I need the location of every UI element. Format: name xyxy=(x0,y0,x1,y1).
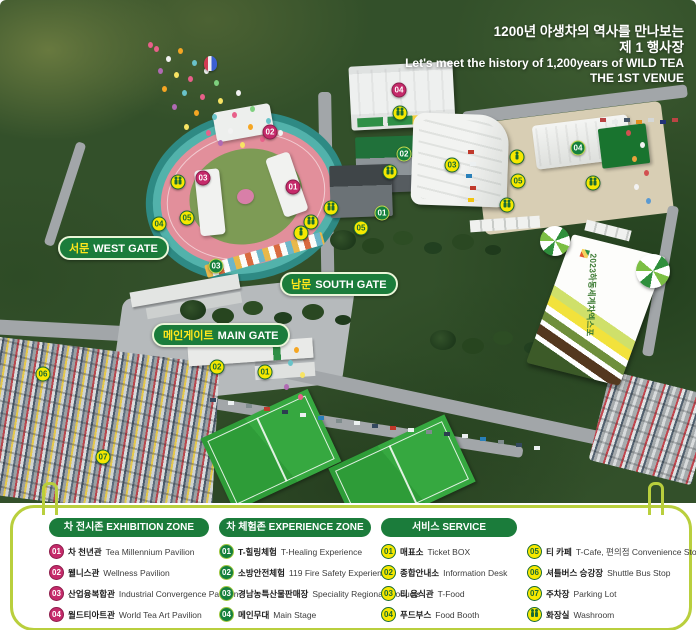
legend-label-english: 119 Fire Safety Experience xyxy=(289,568,391,578)
map-marker-washroom xyxy=(586,176,601,191)
expo-banner-text: 2023하동세계차엑스포 xyxy=(584,253,600,336)
map-marker-figure xyxy=(294,226,309,241)
legend-marker-01: 01 xyxy=(219,544,234,559)
legend-label-english: T-Food xyxy=(438,589,465,599)
map-marker-service-07: 07 xyxy=(96,450,111,465)
washroom-icon xyxy=(387,169,394,175)
legend-label-english: Ticket BOX xyxy=(427,547,470,557)
map-marker-exhibition-04: 04 xyxy=(392,83,407,98)
legend-marker-04: 04 xyxy=(49,607,64,622)
person-icon xyxy=(300,230,303,236)
washroom-icon xyxy=(328,205,335,211)
gate-south-korean: 남문 xyxy=(291,279,311,291)
person-icon xyxy=(516,154,519,160)
legend-section-experience: 차 체험존 EXPERIENCE ZONE01T-힐링체험T-Healing E… xyxy=(219,518,371,628)
large-white-tent xyxy=(410,112,509,207)
legend-item-service-03: 03티 음식관T-Food xyxy=(381,586,517,601)
legend-label-english: Information Desk xyxy=(443,568,507,578)
parked-cars xyxy=(0,0,6,4)
panel-hanger-pin xyxy=(42,482,58,515)
legend-item-service-2-06: 06셔틀버스 승강장Shuttle Bus Stop xyxy=(527,565,685,580)
map-marker-service-02: 02 xyxy=(210,360,225,375)
map-marker-service-01: 01 xyxy=(258,365,273,380)
title-english-line1: Let's meet the history of 1,200years of … xyxy=(405,56,684,71)
page: 2023하동세계차엑스포 1200년 야생차의 역사를 만나보는 제 1 행사장… xyxy=(0,0,696,630)
legend-item-service-04: 04푸드부스Food Booth xyxy=(381,607,517,622)
legend-label-korean: 티 음식관 xyxy=(400,588,434,600)
legend-label-korean: 주차장 xyxy=(546,588,569,600)
legend-item-experience-04: 04메인무대Main Stage xyxy=(219,607,371,622)
legend-label-english: Tea Millennium Pavilion xyxy=(106,547,195,557)
map-marker-service-05: 05 xyxy=(511,174,526,189)
legend-item-exhibition-04: 04월드티아트관World Tea Art Pavilion xyxy=(49,607,209,622)
legend-label-english: Wellness Pavilion xyxy=(103,568,169,578)
washroom-icon xyxy=(527,607,542,622)
map-marker-service-06: 06 xyxy=(36,367,51,382)
legend-section-service: 서비스 SERVICE01매표소Ticket BOX02종합안내소Informa… xyxy=(381,518,517,628)
gate-west-english: WEST GATE xyxy=(93,243,158,255)
striped-balloon xyxy=(540,226,570,256)
legend-label-english: Washroom xyxy=(573,610,614,620)
title-korean-line1: 1200년 야생차의 역사를 만나보는 xyxy=(405,24,684,40)
legend-label-korean: 셔틀버스 승강장 xyxy=(546,567,603,579)
washroom-icon xyxy=(590,180,597,186)
map-marker-washroom xyxy=(500,198,515,213)
legend-item-exhibition-02: 02웰니스관Wellness Pavilion xyxy=(49,565,209,580)
legend-label-korean: 종합안내소 xyxy=(400,567,439,579)
venue-map: 2023하동세계차엑스포 1200년 야생차의 역사를 만나보는 제 1 행사장… xyxy=(0,0,696,503)
gate-label-south: 남문SOUTH GATE xyxy=(280,272,398,296)
map-marker-experience-02: 02 xyxy=(397,147,412,162)
expo-banner: 2023하동세계차엑스포 xyxy=(538,226,672,394)
panel-hanger-pin xyxy=(648,482,664,515)
map-title: 1200년 야생차의 역사를 만나보는 제 1 행사장 Let's meet t… xyxy=(405,24,684,86)
legend-section-exhibition: 차 전시존 EXHIBITION ZONE01차 천년관Tea Millenni… xyxy=(49,518,209,628)
legend-label-korean: T-힐링체험 xyxy=(238,546,277,558)
legend-label-korean: 메인무대 xyxy=(238,609,269,621)
map-marker-experience-03: 03 xyxy=(209,259,224,274)
tree-cluster xyxy=(330,230,356,250)
legend-marker-02: 02 xyxy=(219,565,234,580)
striped-balloon xyxy=(636,254,670,288)
map-marker-washroom xyxy=(324,201,339,216)
legend-label-english: T-Cafe, 편의점 Convenience Store xyxy=(576,546,696,558)
legend-item-exhibition-01: 01차 천년관Tea Millennium Pavilion xyxy=(49,544,209,559)
legend-label-korean: 월드티아트관 xyxy=(68,609,115,621)
tent-row xyxy=(470,216,541,233)
title-english-line2: THE 1ST VENUE xyxy=(405,71,684,86)
map-marker-experience-01: 01 xyxy=(375,206,390,221)
legend-item-service-2-WC: 화장실Washroom xyxy=(527,607,685,622)
map-marker-exhibition-03: 03 xyxy=(196,171,211,186)
legend-marker-05: 05 xyxy=(527,544,542,559)
legend-marker-03: 03 xyxy=(219,586,234,601)
green-building xyxy=(598,123,651,169)
legend-label-english: World Tea Art Pavilion xyxy=(119,610,202,620)
legend-marker-03: 03 xyxy=(49,586,64,601)
gate-label-main: 메인게이트MAIN GATE xyxy=(152,323,290,347)
washroom-icon xyxy=(175,179,182,185)
gate-main-korean: 메인게이트 xyxy=(163,330,214,342)
legend-item-service-2-05: 05티 카페T-Cafe, 편의점 Convenience Store xyxy=(527,544,685,559)
legend-label-english: Main Stage xyxy=(273,610,316,620)
legend-columns: 차 전시존 EXHIBITION ZONE01차 천년관Tea Millenni… xyxy=(13,508,689,630)
tree-cluster xyxy=(180,300,206,320)
legend-label-korean: 차 천년관 xyxy=(68,546,102,558)
map-marker-washroom xyxy=(393,106,408,121)
balloon-cluster xyxy=(148,42,153,48)
hot-air-balloon xyxy=(204,56,217,71)
legend-header-exhibition: 차 전시존 EXHIBITION ZONE xyxy=(49,518,209,537)
gate-west-korean: 서문 xyxy=(69,243,89,255)
gate-main-english: MAIN GATE xyxy=(218,330,279,342)
legend-label-korean: 매표소 xyxy=(400,546,423,558)
legend-marker-02: 02 xyxy=(49,565,64,580)
legend-header-service: 서비스 SERVICE xyxy=(381,518,517,537)
legend-item-service-01: 01매표소Ticket BOX xyxy=(381,544,517,559)
legend-panel: 차 전시존 EXHIBITION ZONE01차 천년관Tea Millenni… xyxy=(10,505,692,630)
legend-marker-06: 06 xyxy=(527,565,542,580)
legend-marker-04: 04 xyxy=(219,607,234,622)
legend-label-english: Food Booth xyxy=(435,610,479,620)
road xyxy=(44,141,87,247)
map-marker-service-03: 03 xyxy=(445,158,460,173)
legend-item-experience-01: 01T-힐링체험T-Healing Experience xyxy=(219,544,371,559)
legend-section-service-2: 05티 카페T-Cafe, 편의점 Convenience Store06셔틀버… xyxy=(527,518,685,628)
legend-label-english: Parking Lot xyxy=(573,589,616,599)
legend-marker-02: 02 xyxy=(381,565,396,580)
tree-cluster xyxy=(430,330,456,350)
map-marker-figure xyxy=(510,150,525,165)
legend-marker-07: 07 xyxy=(527,586,542,601)
legend-label-korean: 푸드부스 xyxy=(400,609,431,621)
gate-label-west: 서문WEST GATE xyxy=(58,236,169,260)
map-marker-service-04: 04 xyxy=(152,217,167,232)
legend-item-service-2-07: 07주차장Parking Lot xyxy=(527,586,685,601)
map-marker-service-05: 05 xyxy=(180,211,195,226)
map-marker-exhibition-01: 01 xyxy=(286,180,301,195)
legend-item-experience-02: 02소방안전체험119 Fire Safety Experience xyxy=(219,565,371,580)
legend-item-exhibition-03: 03산업융복합관Industrial Convergence Pavilion xyxy=(49,586,209,601)
legend-label-english: T-Healing Experience xyxy=(281,547,362,557)
legend-header-experience: 차 체험존 EXPERIENCE ZONE xyxy=(219,518,371,537)
legend-label-korean: 웰니스관 xyxy=(68,567,99,579)
washroom-icon xyxy=(504,202,511,208)
legend-marker-03: 03 xyxy=(381,586,396,601)
legend-label-korean: 경남농특산물판매장 xyxy=(238,588,308,600)
legend-label-korean: 화장실 xyxy=(546,609,569,621)
legend-label-english: Shuttle Bus Stop xyxy=(607,568,670,578)
legend-item-service-02: 02종합안내소Information Desk xyxy=(381,565,517,580)
washroom-icon xyxy=(308,219,315,225)
map-marker-washroom xyxy=(383,165,398,180)
legend-label-korean: 티 카페 xyxy=(546,546,572,558)
washroom-icon xyxy=(397,110,404,116)
legend-marker-01: 01 xyxy=(49,544,64,559)
washroom-icon xyxy=(531,612,538,618)
legend-marker-04: 04 xyxy=(381,607,396,622)
legend-item-experience-03: 03경남농특산물판매장Speciality Regional Products xyxy=(219,586,371,601)
legend-label-korean: 산업융복합관 xyxy=(68,588,115,600)
legend-label-korean: 소방안전체험 xyxy=(238,567,285,579)
title-korean-line2: 제 1 행사장 xyxy=(405,40,684,56)
map-marker-washroom xyxy=(171,175,186,190)
map-marker-experience-04: 04 xyxy=(571,141,586,156)
gate-south-english: SOUTH GATE xyxy=(315,279,386,291)
map-marker-exhibition-02: 02 xyxy=(263,125,278,140)
legend-marker-01: 01 xyxy=(381,544,396,559)
map-marker-service-05: 05 xyxy=(354,221,369,236)
parking-lot-southwest xyxy=(0,336,220,503)
